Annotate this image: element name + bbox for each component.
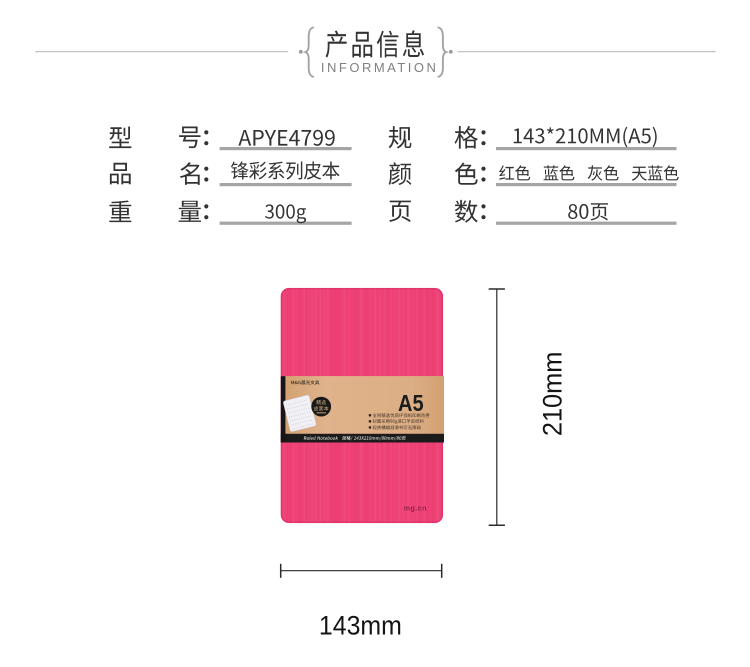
- svg-text:INFORMATION: INFORMATION: [321, 60, 439, 75]
- svg-text:143mm: 143mm: [319, 610, 402, 640]
- svg-text:A5: A5: [398, 390, 424, 416]
- svg-text:mg.cn: mg.cn: [404, 505, 427, 512]
- svg-text:210mm: 210mm: [538, 352, 568, 437]
